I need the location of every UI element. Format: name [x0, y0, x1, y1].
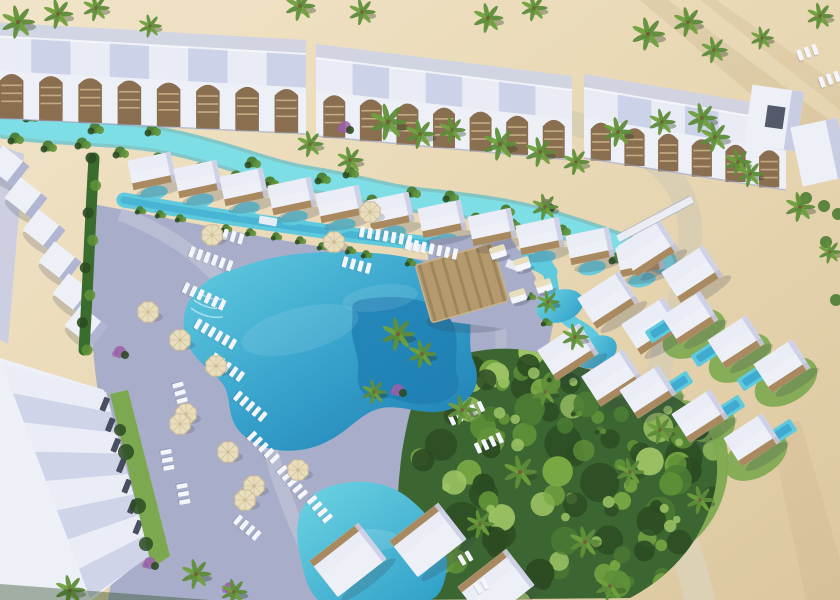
balcony-line — [592, 141, 609, 143]
balcony-line — [41, 87, 62, 89]
palm-trunk-top — [736, 160, 739, 163]
hotel-arch-balconies — [118, 80, 142, 125]
balcony-line — [693, 166, 710, 168]
bush — [367, 253, 373, 259]
palm-trunk-top — [386, 120, 390, 124]
bush — [443, 196, 450, 203]
bush — [405, 262, 410, 267]
balcony-line — [198, 111, 219, 113]
grass-tree — [130, 498, 146, 514]
canopy-highlight — [675, 439, 683, 447]
hotel-arch-balconies — [157, 83, 181, 127]
balcony-line — [276, 108, 297, 110]
canopy-foliage — [543, 484, 565, 506]
balcony-line — [237, 97, 258, 99]
canopy-highlight — [673, 516, 681, 524]
canopy-highlight — [486, 505, 495, 514]
balcony-line — [361, 110, 380, 112]
bush — [601, 429, 607, 435]
canopy-foliage — [659, 472, 683, 496]
bush — [8, 138, 15, 145]
palm-trunk-top — [818, 14, 821, 17]
balcony-line — [119, 91, 140, 93]
balcony-line — [276, 100, 297, 102]
balcony-line — [626, 155, 643, 157]
canopy-foliage — [655, 540, 667, 552]
palm-trunk-top — [658, 428, 661, 431]
hotel-roof-vault — [389, 67, 426, 103]
hotel-roof-vault — [426, 72, 463, 107]
hedge-bush — [83, 207, 94, 218]
hotel-roof-vault — [149, 45, 188, 81]
bush — [175, 218, 180, 223]
grass-tree — [118, 444, 134, 460]
hotel-roof-vault — [31, 38, 70, 74]
bush — [135, 210, 140, 215]
hotel-arch-balconies — [275, 89, 299, 133]
hotel-roof-vault — [188, 47, 227, 83]
canopy-highlight — [510, 415, 520, 425]
parasol-pole — [332, 240, 335, 243]
balcony-line — [237, 105, 258, 107]
balcony-line — [325, 106, 344, 108]
palm-trunk-top — [698, 498, 701, 501]
balcony-line — [761, 161, 778, 163]
palm-trunk-top — [583, 540, 587, 544]
canopy-highlight — [511, 439, 524, 452]
palm-trunk-top — [232, 590, 235, 593]
balcony-line — [80, 97, 101, 99]
palm-trunk-top — [646, 32, 650, 36]
palm-trunk-top — [518, 470, 522, 474]
bush — [251, 231, 257, 237]
hedge-bush — [87, 235, 98, 246]
bush — [361, 254, 366, 259]
bush — [277, 235, 283, 241]
hotel-arch-balconies — [196, 85, 220, 129]
balcony-line — [158, 93, 179, 95]
balcony-line — [761, 169, 778, 171]
bougainvillea — [142, 562, 148, 568]
bush — [317, 246, 322, 251]
parasol-pole — [214, 364, 217, 367]
balcony-line — [41, 95, 62, 97]
hotel-roof-vault — [267, 52, 306, 88]
hotel-roof-vault — [228, 50, 267, 86]
palm-trunk-top — [16, 20, 20, 24]
palm-trunk-top — [686, 20, 690, 24]
canopy-foliage — [573, 440, 595, 462]
balcony-line — [80, 89, 101, 91]
parasol-pole — [146, 310, 149, 313]
canopy-foliage — [412, 449, 435, 472]
balcony-line — [119, 99, 140, 101]
palm-trunk-top — [543, 205, 546, 208]
balcony-line — [471, 122, 490, 124]
grass-tree — [139, 537, 153, 551]
bush — [315, 178, 322, 185]
bush — [295, 240, 300, 245]
bush — [351, 249, 357, 255]
palm-trunk-top — [700, 116, 704, 120]
bougainvillea — [337, 126, 343, 132]
bush — [245, 232, 250, 237]
hotel-roof-vault — [535, 85, 572, 119]
shrub — [399, 389, 407, 397]
bush — [595, 430, 600, 435]
hedge-bush — [90, 180, 101, 191]
bush — [83, 141, 91, 149]
balcony-line — [1, 85, 22, 87]
balcony-line — [80, 105, 101, 107]
canopy-foliage — [551, 527, 579, 555]
shrub — [346, 126, 354, 134]
bush — [161, 213, 167, 219]
bush — [41, 146, 48, 153]
bush — [411, 261, 417, 267]
bush — [181, 217, 187, 223]
balcony-line — [276, 116, 297, 118]
bougainvillea — [112, 351, 118, 357]
palm-trunk-top — [450, 128, 453, 131]
bush — [301, 239, 307, 245]
bush — [547, 378, 552, 383]
balcony-line — [693, 158, 710, 160]
palm-trunk-top — [660, 120, 663, 123]
balcony-line — [1, 101, 22, 103]
palm-trunk-top — [829, 251, 832, 254]
hedge-bush — [80, 262, 91, 273]
shrub — [151, 562, 159, 570]
parasol-pole — [243, 498, 246, 501]
resort-aerial-rendering — [0, 0, 840, 600]
canopy-highlight — [603, 496, 615, 508]
palm-trunk-top — [373, 391, 376, 394]
palm-trunk-top — [194, 572, 198, 576]
balcony-line — [544, 138, 563, 140]
hedge-shrub — [818, 200, 830, 212]
palm-trunk-top — [713, 135, 717, 139]
parasol-pole — [296, 468, 299, 471]
balcony-line — [544, 130, 563, 132]
canopy-foliage — [613, 546, 630, 563]
parasol-pole — [178, 422, 181, 425]
canopy-highlight — [660, 504, 669, 513]
balcony-line — [592, 133, 609, 135]
parasol-pole — [178, 338, 181, 341]
hotel-roof-vault — [110, 43, 149, 79]
balcony-line — [471, 130, 490, 132]
bush — [113, 152, 120, 159]
bush — [343, 172, 350, 179]
balcony-line — [1, 93, 22, 95]
bush — [577, 411, 583, 417]
palm-trunk-top — [360, 10, 363, 13]
canopy-highlight — [498, 377, 510, 389]
palm-trunk-top — [149, 25, 152, 28]
hotel-roof-vault — [499, 81, 536, 115]
bougainvillea — [390, 389, 396, 395]
palm-trunk-top — [308, 142, 311, 145]
bush — [413, 190, 421, 198]
bush — [16, 136, 24, 144]
hedge-bush — [86, 153, 97, 164]
palm-trunk-top — [712, 48, 715, 51]
palm-trunk-top — [574, 160, 577, 163]
palm-trunk-top — [748, 172, 751, 175]
hedge-bush — [82, 345, 93, 356]
palm-trunk-top — [628, 470, 631, 473]
bush — [571, 412, 576, 417]
shrub — [121, 351, 129, 359]
palm-trunk-top — [761, 37, 764, 40]
bush — [351, 170, 359, 178]
palm-trunk-top — [616, 130, 620, 134]
palm-trunk-top — [547, 301, 550, 304]
canopy-shadow — [580, 463, 619, 502]
resort-scene-canvas — [0, 0, 840, 600]
hedge-bush — [84, 290, 95, 301]
hotel-arch-balconies — [235, 87, 259, 131]
hotel-arch-balconies — [0, 74, 23, 119]
palm-trunk-top — [486, 16, 490, 20]
bush — [547, 321, 553, 327]
bush — [75, 143, 82, 150]
palm-trunk-top — [298, 4, 302, 8]
balcony-line — [41, 103, 62, 105]
balcony-line — [508, 126, 527, 128]
palm-trunk-top — [538, 150, 542, 154]
palm-trunk-top — [543, 390, 546, 393]
balcony-line — [158, 109, 179, 111]
palm-trunk-top — [608, 584, 612, 588]
grass-tree — [114, 424, 126, 436]
bush — [531, 295, 537, 301]
palm-trunk-top — [532, 6, 535, 9]
canopy-highlight — [442, 483, 450, 491]
balcony-line — [237, 113, 258, 115]
bush — [153, 128, 161, 136]
palm-trunk-top — [573, 335, 576, 338]
balcony-line — [325, 114, 344, 116]
canopy-foliage — [557, 418, 573, 434]
palm-trunk-top — [478, 522, 481, 525]
balcony-line — [693, 150, 710, 152]
palm-trunk-top — [348, 158, 351, 161]
canopy-foliage — [542, 456, 572, 486]
balcony-line — [660, 144, 677, 146]
bush — [155, 214, 160, 219]
palm-trunk-top — [94, 6, 97, 9]
canopy-highlight — [494, 407, 505, 418]
bush — [88, 128, 95, 135]
palm-trunk-top — [396, 332, 400, 336]
palm-trunk-top — [798, 205, 802, 209]
balcony-line — [119, 107, 140, 109]
tower-window — [765, 105, 786, 129]
palm-trunk-top — [460, 408, 464, 412]
bush — [271, 236, 276, 241]
bush — [141, 209, 147, 215]
canopy-foliage — [613, 406, 628, 421]
hotel-roof-vault — [0, 36, 31, 73]
balcony-line — [398, 114, 417, 116]
hotel-roof-vault — [316, 58, 353, 95]
parasol-pole — [210, 233, 213, 236]
hotel-arch-balconies — [39, 76, 63, 121]
balcony-line — [198, 95, 219, 97]
hotel-roof-vault — [462, 76, 499, 111]
palm-trunk-top — [418, 132, 422, 136]
hedge-bush — [77, 317, 88, 328]
balcony-line — [626, 147, 643, 149]
hotel-roof-vault — [353, 63, 390, 99]
balcony-line — [198, 103, 219, 105]
bush — [49, 144, 57, 152]
canopy-foliage — [476, 369, 497, 390]
palm-trunk-top — [56, 12, 60, 16]
balcony-line — [660, 152, 677, 154]
bush — [245, 162, 252, 169]
parasol-pole — [368, 210, 371, 213]
hotel-arch-balconies — [78, 78, 102, 123]
canopy-foliage — [634, 540, 655, 561]
parasol-pole — [226, 450, 229, 453]
bush — [121, 150, 129, 158]
balcony-line — [158, 101, 179, 103]
palm-trunk-top — [498, 142, 502, 146]
palm-trunk-top — [420, 352, 423, 355]
balcony-line — [660, 160, 677, 162]
bush — [323, 176, 331, 184]
bush — [145, 130, 152, 137]
balcony-line — [508, 134, 527, 136]
parasol-pole — [252, 484, 255, 487]
canopy-highlight — [528, 367, 540, 379]
bush — [253, 160, 261, 168]
bush — [96, 126, 104, 134]
bush — [541, 322, 546, 327]
canopy-highlight — [561, 513, 570, 522]
hotel-roof-vault — [71, 41, 110, 77]
bush — [563, 228, 571, 236]
balcony-line — [592, 149, 609, 151]
